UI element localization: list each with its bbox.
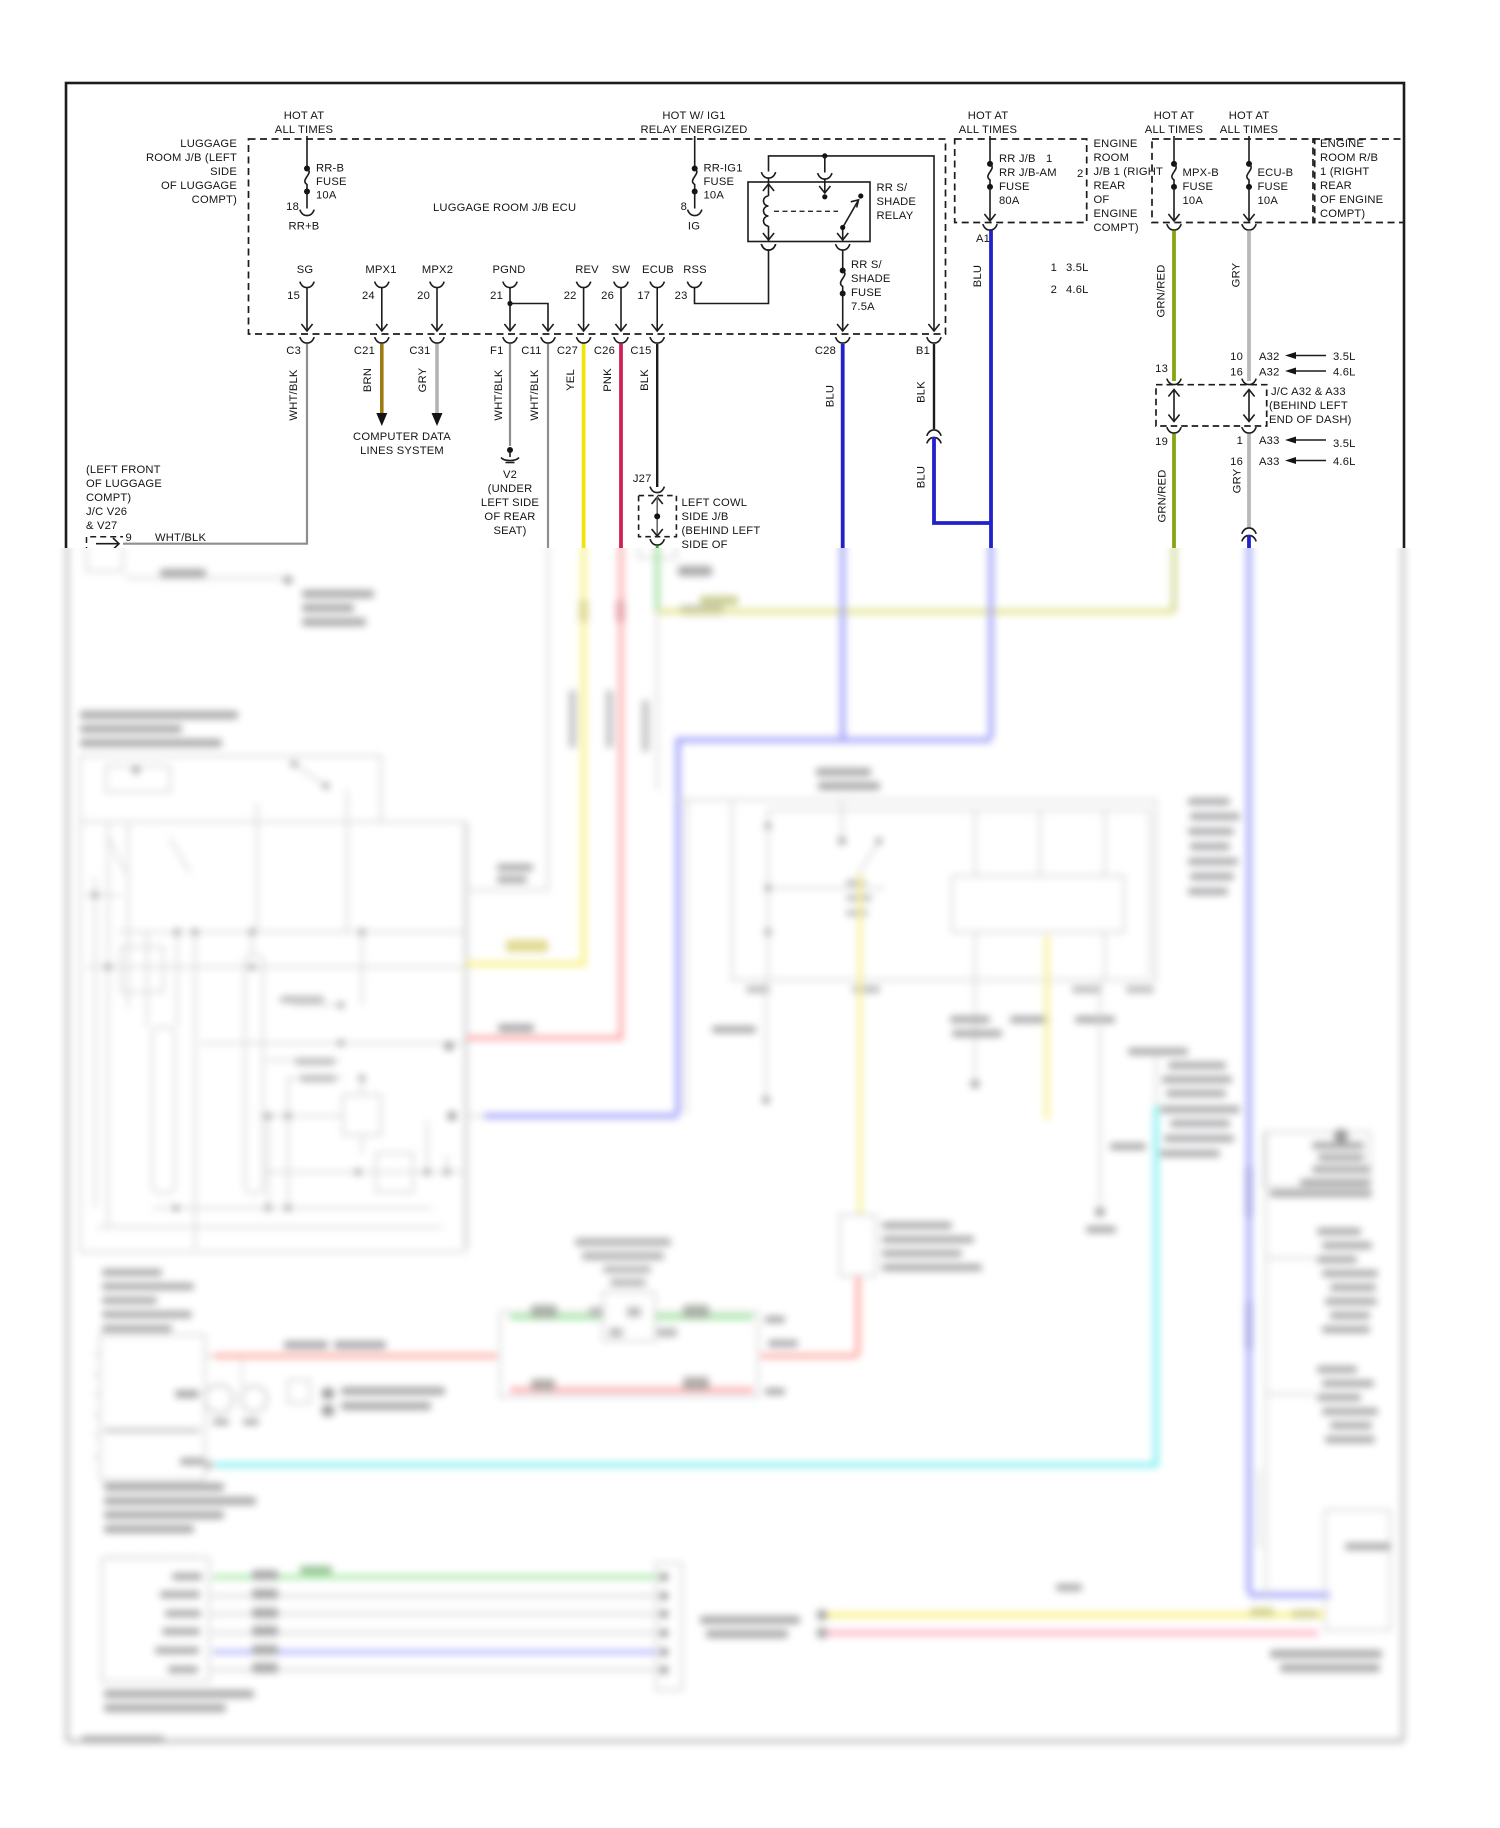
svg-text:ECUB: ECUB <box>642 264 674 276</box>
svg-text:HOT AT: HOT AT <box>284 110 325 122</box>
svg-text:ENGINE: ENGINE <box>1094 138 1138 150</box>
svg-text:GRY: GRY <box>417 367 429 392</box>
svg-text:24: 24 <box>362 290 375 302</box>
svg-text:A1: A1 <box>976 233 990 245</box>
svg-text:MPX-B: MPX-B <box>1183 167 1219 179</box>
svg-text:ENGINE: ENGINE <box>1094 208 1138 220</box>
svg-text:8: 8 <box>681 201 687 213</box>
svg-text:GRN/RED: GRN/RED <box>1157 470 1169 523</box>
svg-text:COMPT): COMPT) <box>1094 222 1139 234</box>
svg-text:ALL TIMES: ALL TIMES <box>959 124 1017 136</box>
svg-text:10A: 10A <box>1183 195 1204 207</box>
svg-text:A33: A33 <box>1259 456 1280 468</box>
svg-text:MPX1: MPX1 <box>365 264 396 276</box>
svg-text:C28: C28 <box>815 345 836 357</box>
svg-text:PNK: PNK <box>602 368 614 392</box>
svg-text:C15: C15 <box>630 345 651 357</box>
svg-text:HOT AT: HOT AT <box>1154 110 1195 122</box>
svg-text:J27: J27 <box>633 473 652 485</box>
svg-text:OF ENGINE: OF ENGINE <box>1320 194 1383 206</box>
svg-text:RELAY: RELAY <box>877 210 914 222</box>
svg-text:LEFT SIDE: LEFT SIDE <box>481 497 539 509</box>
svg-text:B1: B1 <box>916 345 930 357</box>
svg-text:IG: IG <box>688 221 700 233</box>
svg-text:V2: V2 <box>503 469 517 481</box>
svg-text:OF LUGGAGE: OF LUGGAGE <box>86 478 162 490</box>
svg-text:(BEHIND LEFT: (BEHIND LEFT <box>1269 400 1348 412</box>
svg-text:1 (RIGHT: 1 (RIGHT <box>1320 166 1369 178</box>
svg-text:7.5A: 7.5A <box>851 301 875 313</box>
svg-text:A33: A33 <box>1259 435 1280 447</box>
svg-text:3.5L: 3.5L <box>1066 262 1089 274</box>
svg-text:J/C V26: J/C V26 <box>86 506 127 518</box>
svg-text:SEAT): SEAT) <box>493 525 526 537</box>
svg-text:& V27: & V27 <box>86 520 117 532</box>
svg-text:WHT/BLK: WHT/BLK <box>155 532 206 544</box>
svg-text:ENGINE: ENGINE <box>1320 138 1364 150</box>
svg-text:A32: A32 <box>1259 351 1280 363</box>
svg-text:10: 10 <box>1230 351 1243 363</box>
svg-text:END OF DASH): END OF DASH) <box>1269 414 1352 426</box>
svg-text:COMPT): COMPT) <box>192 194 237 206</box>
svg-text:RR S/: RR S/ <box>851 259 883 271</box>
svg-text:YEL: YEL <box>565 369 577 391</box>
svg-text:16: 16 <box>1230 456 1243 468</box>
svg-text:BLU: BLU <box>825 385 837 407</box>
svg-text:SW: SW <box>612 264 631 276</box>
svg-text:WHT/BLK: WHT/BLK <box>493 369 505 420</box>
svg-text:26: 26 <box>601 290 614 302</box>
svg-text:2: 2 <box>1077 168 1083 180</box>
svg-text:BLU: BLU <box>972 265 984 287</box>
svg-text:WHT/BLK: WHT/BLK <box>288 369 300 420</box>
svg-text:ALL TIMES: ALL TIMES <box>1145 124 1203 136</box>
svg-text:C27: C27 <box>557 345 578 357</box>
svg-text:C31: C31 <box>409 345 430 357</box>
svg-text:13: 13 <box>1155 363 1168 375</box>
svg-text:21: 21 <box>490 290 503 302</box>
svg-text:REV: REV <box>575 264 599 276</box>
svg-text:OF LUGGAGE: OF LUGGAGE <box>161 180 237 192</box>
svg-text:SHADE: SHADE <box>877 196 917 208</box>
svg-text:ROOM: ROOM <box>1094 152 1130 164</box>
svg-text:4.6L: 4.6L <box>1066 284 1089 296</box>
svg-text:18: 18 <box>286 201 299 213</box>
svg-text:GRY: GRY <box>1232 468 1244 493</box>
svg-text:RELAY ENERGIZED: RELAY ENERGIZED <box>640 124 747 136</box>
svg-text:19: 19 <box>1155 436 1168 448</box>
svg-text:LINES SYSTEM: LINES SYSTEM <box>360 445 444 457</box>
svg-text:BLK: BLK <box>916 381 928 403</box>
svg-text:C11: C11 <box>521 345 541 357</box>
svg-text:1: 1 <box>1046 153 1052 165</box>
svg-text:REAR: REAR <box>1320 180 1352 192</box>
svg-text:RR S/: RR S/ <box>877 182 909 194</box>
svg-text:RR J/B: RR J/B <box>999 153 1036 165</box>
svg-text:RSS: RSS <box>683 264 707 276</box>
svg-text:22: 22 <box>564 290 577 302</box>
svg-text:FUSE: FUSE <box>316 176 347 188</box>
svg-text:15: 15 <box>287 290 300 302</box>
svg-text:RR-B: RR-B <box>316 163 344 175</box>
svg-text:SHADE: SHADE <box>851 273 891 285</box>
svg-text:HOT AT: HOT AT <box>968 110 1009 122</box>
svg-text:COMPUTER DATA: COMPUTER DATA <box>353 431 451 443</box>
svg-text:LEFT COWL: LEFT COWL <box>682 497 748 509</box>
svg-text:10A: 10A <box>704 190 725 202</box>
svg-text:10A: 10A <box>316 190 337 202</box>
svg-text:(LEFT FRONT: (LEFT FRONT <box>86 464 161 476</box>
svg-text:HOT W/ IG1: HOT W/ IG1 <box>662 110 725 122</box>
svg-text:ROOM R/B: ROOM R/B <box>1320 152 1378 164</box>
svg-text:BLU: BLU <box>916 466 928 488</box>
svg-text:GRY: GRY <box>1231 262 1243 287</box>
svg-text:HOT AT: HOT AT <box>1229 110 1270 122</box>
svg-text:4.6L: 4.6L <box>1333 367 1356 379</box>
svg-text:ALL TIMES: ALL TIMES <box>1220 124 1278 136</box>
svg-text:RR+B: RR+B <box>289 221 320 233</box>
svg-text:ALL TIMES: ALL TIMES <box>275 124 333 136</box>
svg-text:3.5L: 3.5L <box>1333 351 1356 363</box>
svg-text:4.6L: 4.6L <box>1333 456 1356 468</box>
svg-text:J/C A32 & A33: J/C A32 & A33 <box>1271 386 1346 398</box>
svg-text:COMPT): COMPT) <box>1320 208 1365 220</box>
svg-text:C26: C26 <box>594 345 615 357</box>
svg-text:C21: C21 <box>354 345 375 357</box>
svg-text:WHT/BLK: WHT/BLK <box>529 369 541 420</box>
svg-text:(UNDER: (UNDER <box>488 483 533 495</box>
svg-text:MPX2: MPX2 <box>422 264 453 276</box>
svg-text:FUSE: FUSE <box>1183 181 1214 193</box>
svg-text:ROOM J/B (LEFT: ROOM J/B (LEFT <box>146 152 237 164</box>
svg-text:BRN: BRN <box>362 368 374 392</box>
svg-text:REAR: REAR <box>1094 180 1126 192</box>
svg-text:23: 23 <box>675 290 688 302</box>
svg-text:LUGGAGE: LUGGAGE <box>180 138 237 150</box>
svg-text:FUSE: FUSE <box>1258 181 1289 193</box>
svg-text:ECU-B: ECU-B <box>1258 167 1294 179</box>
svg-text:RR-IG1: RR-IG1 <box>704 163 743 175</box>
svg-text:OF REAR: OF REAR <box>484 511 535 523</box>
svg-text:BLK: BLK <box>639 369 651 391</box>
svg-text:F1: F1 <box>490 345 503 357</box>
svg-text:LUGGAGE ROOM J/B ECU: LUGGAGE ROOM J/B ECU <box>433 202 576 214</box>
svg-text:SIDE: SIDE <box>210 166 237 178</box>
svg-text:80A: 80A <box>999 195 1020 207</box>
svg-text:SIDE J/B: SIDE J/B <box>682 511 729 523</box>
svg-text:A32: A32 <box>1259 367 1280 379</box>
svg-text:17: 17 <box>637 290 650 302</box>
svg-text:2: 2 <box>1051 284 1057 296</box>
svg-text:FUSE: FUSE <box>704 176 735 188</box>
svg-text:GRN/RED: GRN/RED <box>1156 265 1168 318</box>
svg-text:PGND: PGND <box>492 264 525 276</box>
svg-text:FUSE: FUSE <box>999 181 1030 193</box>
svg-text:9: 9 <box>126 532 132 544</box>
svg-text:SG: SG <box>297 264 314 276</box>
svg-text:16: 16 <box>1230 367 1243 379</box>
svg-text:C3: C3 <box>286 345 301 357</box>
svg-text:3.5L: 3.5L <box>1333 438 1356 450</box>
svg-text:FUSE: FUSE <box>851 287 882 299</box>
svg-text:(BEHIND LEFT: (BEHIND LEFT <box>682 525 761 537</box>
svg-text:COMPT): COMPT) <box>86 492 131 504</box>
svg-text:20: 20 <box>417 290 430 302</box>
svg-text:1: 1 <box>1237 435 1243 447</box>
svg-text:RR J/B-AM: RR J/B-AM <box>999 167 1057 179</box>
svg-text:1: 1 <box>1051 262 1057 274</box>
svg-text:OF: OF <box>1094 194 1110 206</box>
svg-text:10A: 10A <box>1258 195 1279 207</box>
